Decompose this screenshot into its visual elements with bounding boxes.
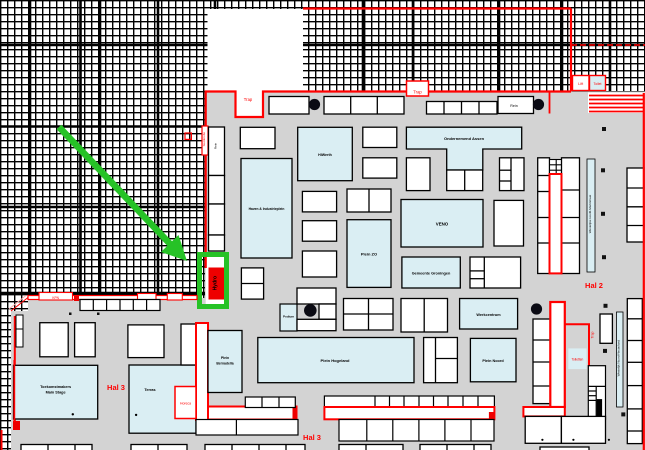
svg-text:KPN: KPN xyxy=(52,296,59,300)
svg-text:Garderobe: Garderobe xyxy=(202,132,206,147)
svg-text:Toekomstmakers: Toekomstmakers xyxy=(40,385,71,389)
svg-text:Plein Hogeland: Plein Hogeland xyxy=(321,358,350,363)
svg-text:Hal 3: Hal 3 xyxy=(107,383,125,392)
svg-text:Trap: Trap xyxy=(591,331,595,338)
svg-text:Rein: Rein xyxy=(214,143,218,150)
svg-text:Westelijke Hoofd-Marktstraat: Westelijke Hoofd-Marktstraat xyxy=(588,195,592,234)
svg-text:Rein: Rein xyxy=(510,104,517,108)
svg-text:VENO: VENO xyxy=(436,222,449,227)
svg-text:Hal 3: Hal 3 xyxy=(303,433,321,442)
svg-text:Trap: Trap xyxy=(413,90,422,95)
svg-text:Podium: Podium xyxy=(283,315,294,319)
svg-text:Terras: Terras xyxy=(144,388,155,392)
svg-text:HiWerth: HiWerth xyxy=(318,153,332,157)
svg-text:Haven & Industrieplein: Haven & Industrieplein xyxy=(249,207,285,211)
svg-text:Main Stage: Main Stage xyxy=(46,391,66,395)
svg-text:Toilet: Toilet xyxy=(594,82,602,86)
svg-text:Trap: Trap xyxy=(244,97,253,102)
svg-text:Horeca: Horeca xyxy=(180,402,191,406)
svg-text:Westelijk Noord-Nectarland: Westelijk Noord-Nectarland xyxy=(617,340,621,377)
svg-text:Hal 2: Hal 2 xyxy=(585,281,603,290)
svg-text:Bernadella: Bernadella xyxy=(216,362,233,366)
svg-text:Werkcentrum: Werkcentrum xyxy=(476,313,501,317)
svg-text:Ondernemend Assen: Ondernemend Assen xyxy=(444,136,485,141)
svg-text:Hydro: Hydro xyxy=(213,276,219,290)
svg-text:Plein ZO: Plein ZO xyxy=(361,252,377,257)
svg-text:Gemeente Groningen: Gemeente Groningen xyxy=(412,272,451,276)
svg-text:Toiletten: Toiletten xyxy=(571,358,583,362)
svg-text:Plein: Plein xyxy=(221,356,229,360)
svg-text:Plein Noord: Plein Noord xyxy=(482,359,504,363)
